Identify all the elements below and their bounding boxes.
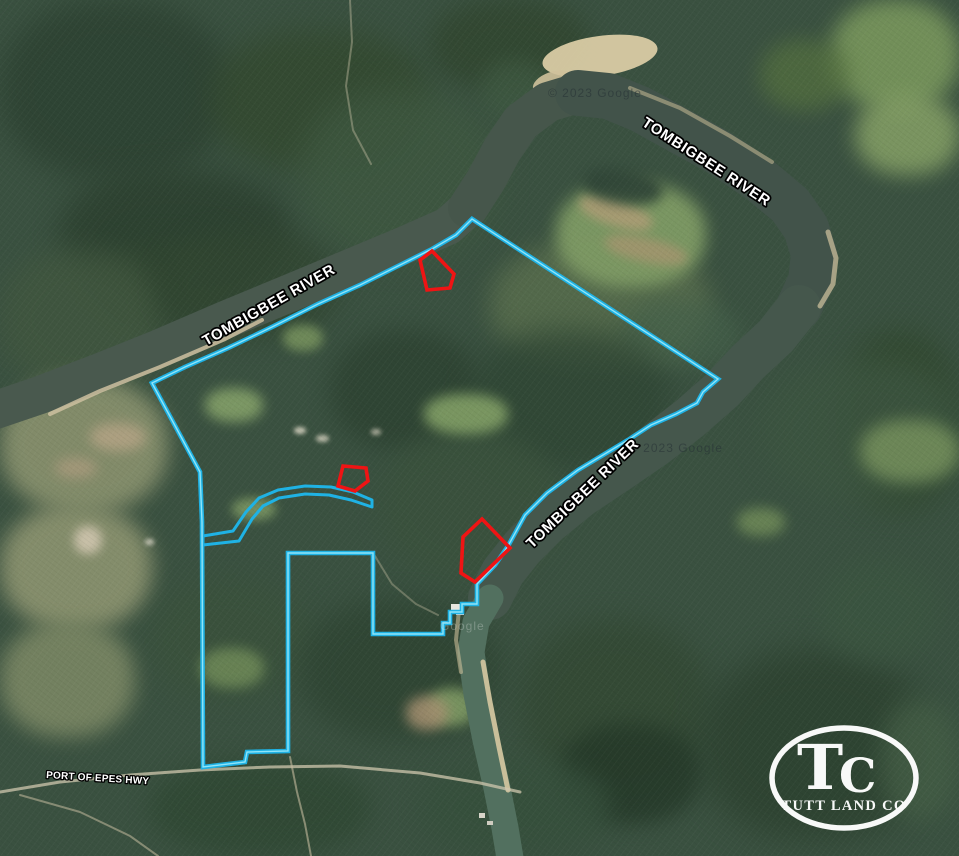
dirt-road xyxy=(290,757,311,856)
google-watermark: © 2023 Google xyxy=(629,441,723,455)
logo-monogram-c: C xyxy=(839,749,876,804)
access-corridor-boundary xyxy=(203,486,372,545)
logo-monogram-t: T xyxy=(797,731,843,804)
company-logo: T C TUTT LAND CO xyxy=(772,728,916,828)
river-label-middle: TOMBIGBEE RIVER xyxy=(523,436,642,552)
dirt-road xyxy=(20,795,158,856)
geometry-layer xyxy=(0,0,836,856)
tombigbee-river-water xyxy=(0,208,468,412)
excluded-parcel-boundary xyxy=(420,251,454,290)
google-watermark: Google xyxy=(440,619,485,633)
excluded-parcel-boundary xyxy=(338,466,368,491)
highway-label: PORT OF EPES HWY xyxy=(46,770,150,787)
tombigbee-river-water xyxy=(468,93,578,208)
logo-company-name: TUTT LAND CO xyxy=(782,798,907,814)
building-structure xyxy=(487,821,493,825)
tombigbee-river-water xyxy=(578,93,814,307)
dirt-road xyxy=(375,556,438,615)
dirt-road xyxy=(346,0,371,164)
map-overlay-svg: © 2023 Google © 2023 Google Google TOMBI… xyxy=(0,0,959,856)
satellite-property-map: © 2023 Google © 2023 Google Google TOMBI… xyxy=(0,0,959,856)
google-watermark: © 2023 Google xyxy=(548,86,642,100)
tombigbee-river-water xyxy=(471,598,510,856)
building-structure xyxy=(479,813,485,818)
